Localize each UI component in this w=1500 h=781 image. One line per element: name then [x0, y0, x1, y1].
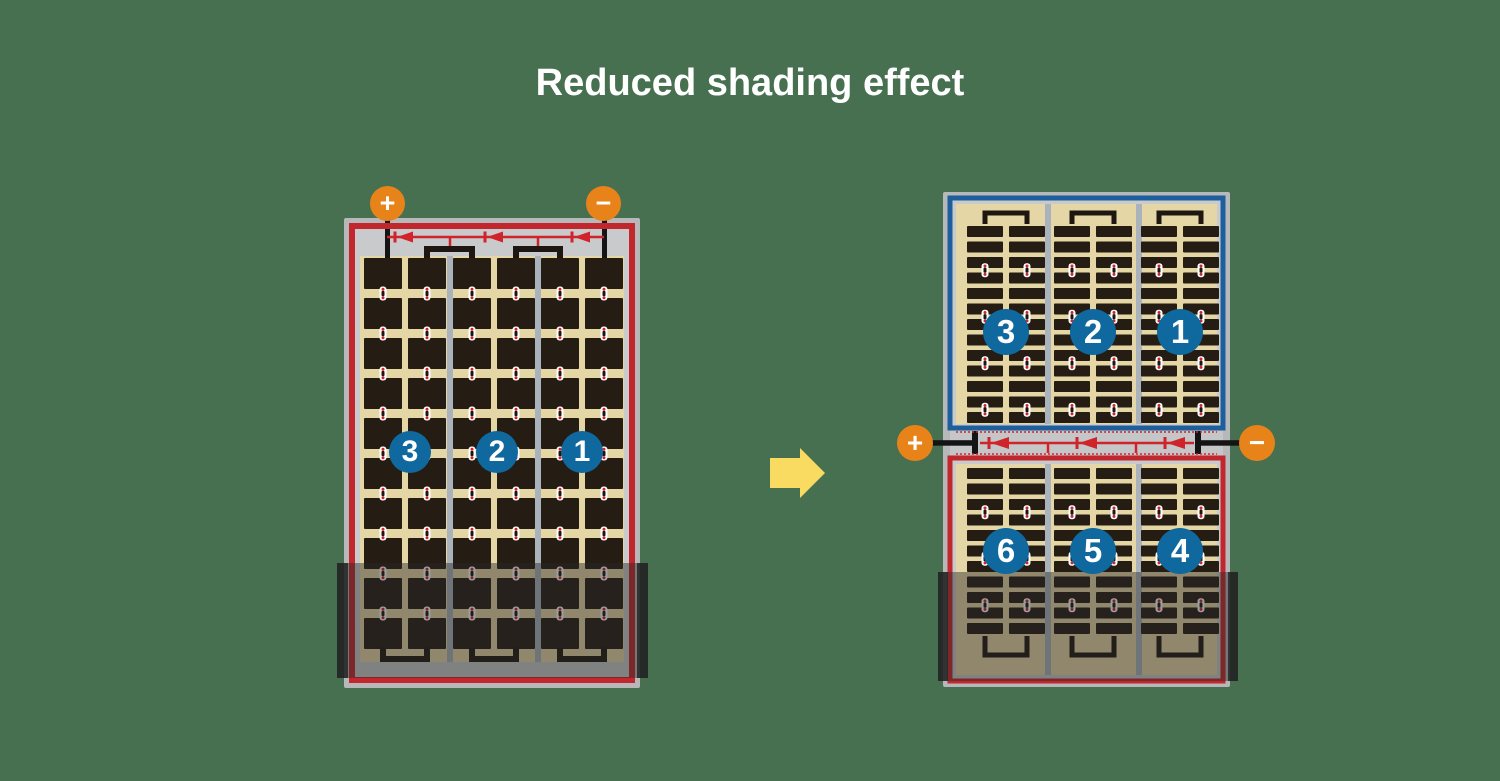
right-panel-shade-overlay [938, 572, 1238, 681]
arrow-graphic [765, 443, 830, 503]
transition-arrow-icon [765, 443, 830, 508]
section-label: 3 [997, 313, 1015, 351]
plus-terminal-label: + [380, 186, 396, 221]
plus-terminal-icon: + [897, 425, 933, 461]
section-label: 1 [574, 435, 591, 469]
right-panel-bottom-section-4-badge: 4 [1157, 528, 1203, 574]
minus-terminal-label: − [596, 186, 612, 221]
minus-terminal-label: − [1249, 425, 1265, 461]
left-panel-section-1-badge: 1 [561, 431, 603, 473]
diagram-title: Reduced shading effect [0, 62, 1500, 105]
right-panel-bottom-section-6-badge: 6 [983, 528, 1029, 574]
left-panel-section-3-badge: 3 [389, 431, 431, 473]
section-label: 1 [1171, 313, 1189, 351]
section-label: 2 [489, 435, 506, 469]
minus-terminal-icon: − [1239, 425, 1275, 461]
section-label: 2 [1084, 313, 1102, 351]
minus-terminal-icon: − [586, 186, 621, 221]
left-panel-section-2-badge: 2 [476, 431, 518, 473]
section-label: 5 [1084, 532, 1102, 570]
left-panel-shade-overlay [337, 563, 648, 678]
section-label: 6 [997, 532, 1015, 570]
right-panel-top-section-3-badge: 3 [983, 309, 1029, 355]
right-panel-top-section-1-badge: 1 [1157, 309, 1203, 355]
right-panel-bottom-section-5-badge: 5 [1070, 528, 1116, 574]
plus-terminal-icon: + [370, 186, 405, 221]
right-panel-top-section-2-badge: 2 [1070, 309, 1116, 355]
section-label: 3 [402, 435, 419, 469]
right-panel-graphic [890, 180, 1290, 700]
plus-terminal-label: + [907, 425, 923, 461]
section-label: 4 [1171, 532, 1189, 570]
diagram-canvas: Reduced shading effect + − 3 2 1 + − 3 2… [0, 0, 1500, 781]
